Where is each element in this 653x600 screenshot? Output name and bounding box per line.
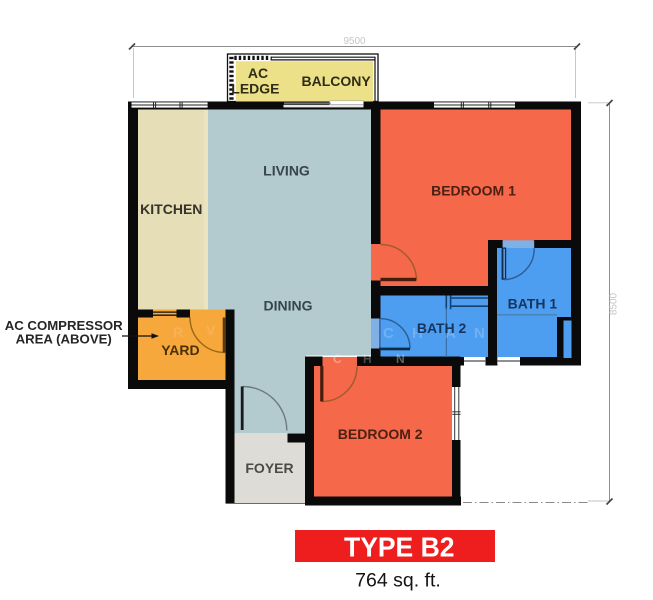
- svg-text:YARD: YARD: [161, 342, 199, 358]
- svg-text:R: R: [173, 324, 183, 340]
- svg-text:DINING: DINING: [264, 298, 313, 314]
- svg-text:BATH 2: BATH 2: [417, 320, 467, 336]
- svg-text:LIVING: LIVING: [263, 163, 310, 179]
- svg-text:BATH 1: BATH 1: [508, 296, 558, 312]
- svg-text:LEDGE: LEDGE: [231, 81, 279, 97]
- svg-text:9500: 9500: [343, 36, 366, 47]
- svg-text:764 sq. ft.: 764 sq. ft.: [355, 570, 441, 592]
- svg-text:TYPE B2: TYPE B2: [344, 532, 455, 563]
- svg-text:C: C: [333, 352, 342, 366]
- svg-text:N: N: [474, 325, 485, 342]
- svg-text:C: C: [383, 325, 394, 342]
- svg-text:H: H: [363, 352, 372, 366]
- svg-text:V: V: [206, 322, 216, 338]
- svg-text:AREA (ABOVE): AREA (ABOVE): [16, 331, 112, 346]
- svg-text:KITCHEN: KITCHEN: [140, 201, 202, 217]
- svg-text:8500: 8500: [609, 292, 620, 315]
- svg-text:BEDROOM 1: BEDROOM 1: [431, 182, 516, 198]
- svg-text:FOYER: FOYER: [245, 460, 293, 476]
- svg-text:N: N: [396, 352, 405, 366]
- svg-text:AC: AC: [248, 65, 268, 81]
- svg-text:BALCONY: BALCONY: [301, 73, 371, 89]
- svg-text:BEDROOM 2: BEDROOM 2: [338, 426, 423, 442]
